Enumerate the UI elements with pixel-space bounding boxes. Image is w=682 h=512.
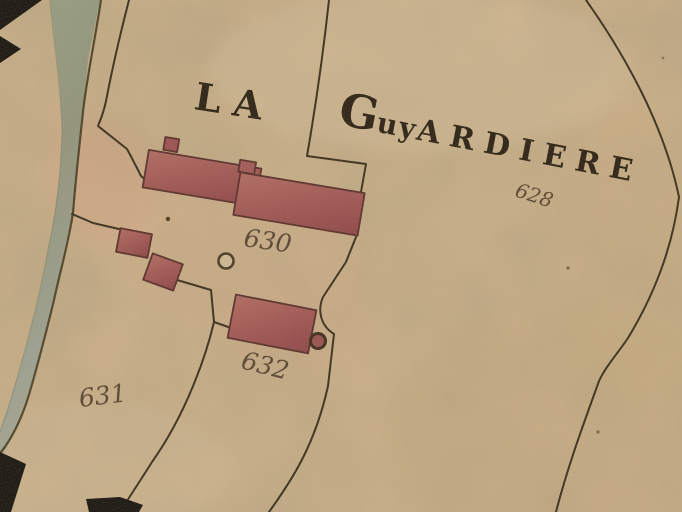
paper-grain-overlay [0,0,682,512]
cadastral-map-canvas[interactable]: LA GuyARDIERE 628 630 631 632 [0,0,682,512]
cadastral-map-viewport: LA GuyARDIERE 628 630 631 632 [0,0,682,512]
